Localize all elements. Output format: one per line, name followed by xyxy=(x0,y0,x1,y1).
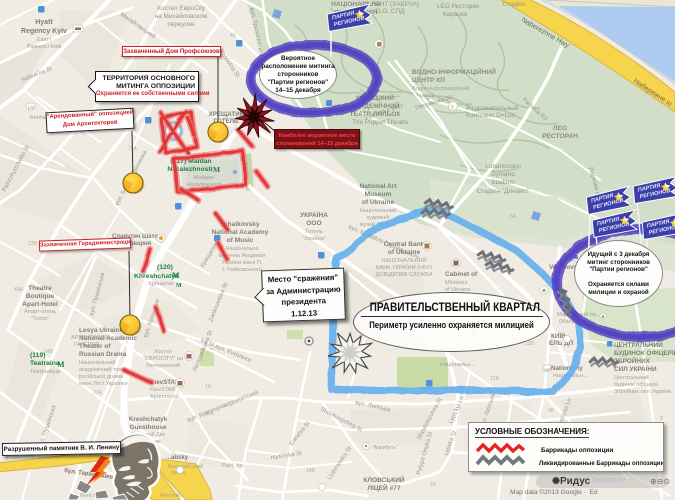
svg-text:1A: 1A xyxy=(205,384,212,390)
svg-text:Бессарабський: Бессарабський xyxy=(168,463,203,470)
svg-text:Apartments: Apartments xyxy=(150,394,179,400)
svg-text:Nationalny: Nationalny xyxy=(551,365,583,372)
svg-text:National Art: National Art xyxy=(359,183,397,190)
svg-text:"Алрибуть": "Алрибуть" xyxy=(372,445,398,451)
svg-text:National Academy: National Academy xyxy=(212,229,269,236)
svg-text:Apart-Hotel: Apart-Hotel xyxy=(22,301,58,308)
svg-text:of Ukraine: of Ukraine xyxy=(362,199,395,206)
svg-text:The Puppet Theatre: The Puppet Theatre xyxy=(352,119,409,126)
svg-text:Pact, Inc: Pact, Inc xyxy=(222,463,244,469)
svg-text:M: M xyxy=(176,283,182,289)
svg-text:(119): (119) xyxy=(30,352,46,359)
svg-text:центр: центр xyxy=(420,93,435,99)
svg-text:художній: художній xyxy=(367,214,390,221)
svg-text:Theatre: Theatre xyxy=(28,285,52,292)
svg-text:Russian Drama: Russian Drama xyxy=(79,351,127,358)
svg-text:98: 98 xyxy=(548,408,554,414)
svg-text:Лютеранской: Лютеранской xyxy=(146,362,180,369)
svg-text:Караоке: Караоке xyxy=(443,11,468,18)
svg-text:І. Чайковського: І. Чайковського xyxy=(222,266,262,273)
svg-text:СИЛ УКРАЇНИ: СИЛ УКРАЇНИ xyxy=(614,365,657,373)
svg-text:Boutique: Boutique xyxy=(26,293,55,300)
svg-text:ЛІЦЕЙ #77: ЛІЦЕЙ #77 xyxy=(367,483,401,492)
svg-text:Національна: Національна xyxy=(225,246,259,252)
svg-text:(120): (120) xyxy=(157,264,173,271)
svg-text:Hyatt: Hyatt xyxy=(35,19,53,26)
svg-text:23: 23 xyxy=(430,482,436,488)
svg-text:НАЦІОНАЛЬНИЙ: НАЦІОНАЛЬНИЙ xyxy=(381,256,426,264)
svg-text:of Music: of Music xyxy=(227,237,254,244)
svg-text:Стадіон: Стадіон xyxy=(502,0,526,8)
svg-text:ГАЛЕРЕЯ: ГАЛЕРЕЯ xyxy=(74,342,99,348)
svg-text:Хрещатик: Хрещатик xyxy=(148,281,174,287)
svg-text:УКРАЇНА: УКРАЇНА xyxy=(300,211,328,219)
svg-text:5A: 5A xyxy=(510,214,517,220)
svg-text:переулке: переулке xyxy=(167,21,195,28)
svg-text:Національн...: Національн... xyxy=(440,362,475,368)
svg-text:Lesya Ukrainka: Lesya Ukrainka xyxy=(79,327,127,334)
svg-text:ООО: ООО xyxy=(306,220,321,227)
svg-text:ХРЕЩАТИК: ХРЕЩАТИК xyxy=(209,111,244,118)
svg-text:Stadium: Stadium xyxy=(491,179,514,186)
svg-text:Комплекс D=Lux: Комплекс D=Lux xyxy=(466,112,516,119)
svg-text:LEO Ресторан: LEO Ресторан xyxy=(437,3,480,10)
svg-text:Regency Kyiv: Regency Kyiv xyxy=(21,28,67,35)
svg-text:російської драми: російської драми xyxy=(79,373,123,380)
svg-text:Cabinet of: Cabinet of xyxy=(445,271,478,278)
svg-text:БУДИНОК ОФІЦЕРІВ: БУДИНОК ОФІЦЕРІВ xyxy=(614,350,675,357)
svg-text:Развлекательный: Развлекательный xyxy=(466,104,519,112)
svg-text:40: 40 xyxy=(230,33,236,39)
svg-text:Y: Y xyxy=(451,105,455,111)
svg-text:"Україна": "Україна" xyxy=(302,236,326,242)
svg-text:Збройних сил України: Збройних сил України xyxy=(614,388,671,395)
svg-text:Ministers: Ministers xyxy=(445,280,468,286)
svg-text:АРТИНОМИИ: АРТИНОМИИ xyxy=(71,335,107,341)
svg-text:Kreshchatyk: Kreshchatyk xyxy=(129,416,168,423)
svg-text:M: M xyxy=(172,271,180,280)
svg-text:Водно-інформаційний: Водно-інформаційний xyxy=(412,85,469,92)
svg-text:РЕСТОРАН: РЕСТОРАН xyxy=(542,133,578,140)
svg-text:Ликвидированные Баррикады оппо: Ликвидированные Баррикады оппозиции xyxy=(539,461,663,467)
svg-text:О.О. СПД: О.О. СПД xyxy=(376,8,405,15)
svg-text:ДОВІДКОВА СЛУЖБА: ДОВІДКОВА СЛУЖБА xyxy=(375,272,432,278)
svg-text:Teatralna: Teatralna xyxy=(30,360,60,367)
svg-text:Museum: Museum xyxy=(365,191,392,198)
svg-text:Хаятт: Хаятт xyxy=(37,37,52,43)
svg-text:Хостел: Хостел xyxy=(154,349,172,355)
svg-text:Центральний: Центральний xyxy=(614,374,649,381)
svg-text:Апарт-отель: Апарт-отель xyxy=(24,309,56,315)
svg-text:Театральна: Театральна xyxy=(30,369,61,375)
svg-text:"ЕВРОСITY" на: "ЕВРОСITY" на xyxy=(143,356,184,362)
svg-text:14B: 14B xyxy=(306,468,316,474)
svg-text:Lm: Lm xyxy=(545,367,552,372)
svg-text:Стадіон "Динамо": Стадіон "Динамо" xyxy=(477,187,530,195)
svg-text:M: M xyxy=(57,360,65,369)
svg-text:імені Лесі Українки: імені Лесі Українки xyxy=(79,381,128,387)
svg-text:будинок офіцера: будинок офіцера xyxy=(614,382,659,388)
svg-text:ЛЕО: ЛЕО xyxy=(553,125,567,132)
svg-text:академічний театр: академічний театр xyxy=(79,366,127,373)
svg-text:Національний: Національний xyxy=(79,359,115,366)
svg-text:Готель: Готель xyxy=(305,229,322,235)
svg-text:БАНК УКРАЇНИ (НБУ): БАНК УКРАЇНИ (НБУ) xyxy=(376,264,432,271)
svg-text:ЗБРОЙНИХ: ЗБРОЙНИХ xyxy=(614,356,651,365)
svg-text:Хостел ЕвроCity: Хостел ЕвроCity xyxy=(157,5,206,12)
svg-text:21A: 21A xyxy=(93,390,103,396)
svg-text:12B: 12B xyxy=(490,376,500,382)
svg-text:23B: 23B xyxy=(28,241,38,247)
svg-text:Lm: Lm xyxy=(28,105,35,110)
svg-text:Guesthouse: Guesthouse xyxy=(130,424,167,431)
svg-text:Майдан: Майдан xyxy=(194,174,214,181)
svg-text:...absky: ...absky xyxy=(166,455,189,461)
svg-text:ВОДНО-ІНФОРМАЦІЙНИЙ: ВОДНО-ІНФОРМАЦІЙНИЙ xyxy=(412,67,496,76)
svg-text:"Театр": "Театр" xyxy=(31,316,50,322)
svg-text:Національний: Національний xyxy=(360,207,396,214)
svg-text:Баррикады оппозиции: Баррикады оппозиции xyxy=(541,447,613,454)
svg-text:Рідженсі Київ: Рідженсі Київ xyxy=(27,44,62,50)
svg-text:M: M xyxy=(213,165,220,174)
svg-text:КЛОВСЬКИЙ: КЛОВСЬКИЙ xyxy=(363,475,405,484)
svg-text:на Михайловском: на Михайловском xyxy=(155,12,208,20)
svg-text:49A: 49A xyxy=(14,287,24,293)
svg-text:KievSTAR: KievSTAR xyxy=(150,387,175,393)
svg-text:Pinchuk: Pinchuk xyxy=(160,493,180,499)
svg-text:12B: 12B xyxy=(525,341,535,347)
svg-text:Dynamo: Dynamo xyxy=(491,171,515,178)
svg-text:Lobanovskyi: Lobanovskyi xyxy=(485,163,521,170)
svg-text:ЦЕНТР КП: ЦЕНТР КП xyxy=(412,77,445,84)
